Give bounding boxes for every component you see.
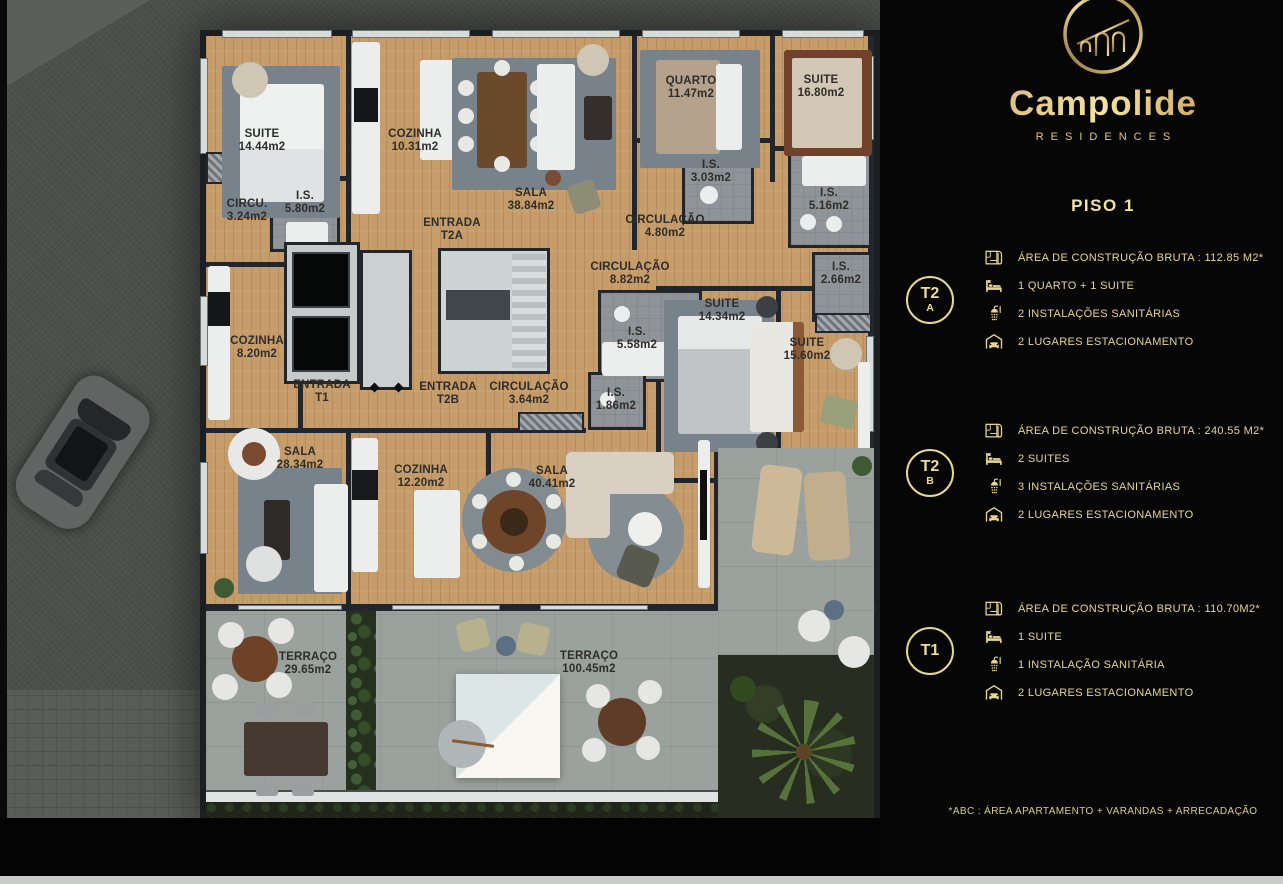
room-label: SUITE15.60m2: [784, 337, 831, 363]
kitchen-counter: [352, 438, 378, 572]
room-label: ENTRADAT2A: [423, 217, 481, 243]
badge-type: T2: [921, 286, 940, 302]
window: [200, 296, 208, 366]
side-table: [628, 512, 662, 546]
aqueduct-logo-icon: [1019, 0, 1187, 76]
stairs: [512, 254, 546, 368]
coffee-table: [584, 96, 612, 140]
table-center: [500, 508, 528, 536]
plant: [852, 456, 872, 476]
outdoor-chair: [515, 621, 551, 657]
floorplan-icon: [984, 421, 1004, 441]
room-label: SALA40.41m2: [529, 465, 576, 491]
room-label: CIRCU.3.24m2: [227, 198, 268, 224]
side-table: [824, 600, 844, 620]
dining-table: [477, 72, 527, 168]
unit-specs: ÁREA DE CONSTRUÇÃO BRUTA : 240.55 M2* 2 …: [984, 421, 1264, 524]
tv: [700, 470, 707, 540]
spec-text: 2 SUITES: [1018, 453, 1070, 465]
kitchen-island: [414, 490, 460, 578]
spec-text: 2 LUGARES ESTACIONAMENTO: [1018, 509, 1193, 521]
room-label: SALA28.34m2: [277, 446, 324, 472]
window: [492, 30, 620, 38]
bush: [730, 676, 756, 702]
garage-icon: [984, 683, 1004, 703]
elevator-shaft: [292, 252, 350, 308]
wardrobe: [815, 313, 872, 333]
dining-chairs: [458, 80, 474, 96]
unit-specs: ÁREA DE CONSTRUÇÃO BRUTA : 110.70M2* 1 S…: [984, 599, 1260, 702]
sofa: [537, 64, 575, 170]
room-label: COZINHA12.20m2: [394, 464, 448, 490]
stair-landing: [446, 290, 510, 320]
brand-name: Campolide: [903, 84, 1283, 124]
room-label: I.S.5.58m2: [617, 326, 657, 352]
room-label: TERRAÇO29.65m2: [279, 651, 337, 677]
pavement-left: [0, 690, 210, 822]
bed-icon: [984, 627, 1004, 647]
bathtub: [802, 156, 866, 186]
spec-row: ÁREA DE CONSTRUÇÃO BRUTA : 112.85 M2*: [984, 248, 1263, 267]
room-label: CIRCULAÇÃO4.80m2: [625, 214, 704, 240]
shower-icon: [984, 655, 1004, 675]
palm-trunk: [796, 744, 812, 760]
room-label: SUITE16.80m2: [798, 74, 845, 100]
spec-row: ÁREA DE CONSTRUÇÃO BRUTA : 240.55 M2*: [984, 421, 1264, 440]
unit-card-t2b: T2 B ÁREA DE CONSTRUÇÃO BRUTA : 240.55 M…: [906, 421, 1271, 524]
spec-text: 1 QUARTO + 1 SUITE: [1018, 280, 1134, 292]
bed: [656, 60, 720, 154]
spec-row: 2 LUGARES ESTACIONAMENTO: [984, 505, 1264, 524]
window: [200, 462, 208, 554]
room-label: SUITE14.44m2: [239, 128, 286, 154]
desk: [858, 362, 870, 450]
shower-icon: [984, 304, 1004, 324]
shower-icon: [984, 477, 1004, 497]
image-left-edge: [0, 0, 7, 822]
wall: [770, 36, 775, 182]
sun-lounger: [803, 471, 851, 562]
window: [222, 30, 332, 38]
spec-text: 1 INSTALAÇÃO SANITÁRIA: [1018, 659, 1165, 671]
room-label: I.S.5.80m2: [285, 190, 325, 216]
window: [238, 605, 342, 610]
spec-row: 2 LUGARES ESTACIONAMENTO: [984, 332, 1263, 351]
bottom-border-bar: [0, 876, 1283, 884]
spec-row: 2 INSTALAÇÕES SANITÁRIAS: [984, 304, 1263, 323]
spec-text: 2 LUGARES ESTACIONAMENTO: [1018, 687, 1193, 699]
room-label: SALA38.84m2: [508, 187, 555, 213]
window: [540, 605, 648, 610]
outdoor-chairs: [256, 702, 278, 718]
spec-row: 2 LUGARES ESTACIONAMENTO: [984, 683, 1260, 702]
bed-icon: [984, 449, 1004, 469]
sofa: [314, 484, 348, 592]
spec-text: ÁREA DE CONSTRUÇÃO BRUTA : 110.70M2*: [1018, 603, 1260, 615]
window: [642, 30, 740, 38]
garage-icon: [984, 332, 1004, 352]
unit-card-t1: T1 ÁREA DE CONSTRUÇÃO BRUTA : 110.70M2* …: [906, 599, 1271, 702]
spec-text: ÁREA DE CONSTRUÇÃO BRUTA : 240.55 M2*: [1018, 425, 1264, 437]
room-label: COZINHA8.20m2: [230, 335, 284, 361]
room-label: I.S.2.66m2: [821, 261, 861, 287]
spec-row: 2 SUITES: [984, 449, 1264, 468]
room-label: I.S.3.03m2: [691, 159, 731, 185]
spec-row: 1 INSTALAÇÃO SANITÁRIA: [984, 655, 1260, 674]
spec-row: 3 INSTALAÇÕES SANITÁRIAS: [984, 477, 1264, 496]
floorplan-icon: [984, 248, 1004, 268]
garage-icon: [984, 505, 1004, 525]
outdoor-chairs: [218, 622, 244, 648]
plant: [214, 578, 234, 598]
dining-chairs: [506, 472, 521, 487]
planter-strip: [346, 611, 376, 791]
washbasin: [614, 306, 630, 322]
room-label: QUARTO11.47m2: [666, 75, 717, 101]
room-label: ENTRADAT1: [293, 379, 351, 405]
badge-type: T2: [921, 459, 940, 475]
badge-type: T1: [921, 643, 940, 659]
room-label: TERRAÇO100.45m2: [560, 650, 618, 676]
car-sunroof: [54, 425, 110, 483]
armchair: [577, 44, 609, 76]
badge-letter: B: [926, 476, 934, 487]
kitchen-counter: [352, 42, 380, 214]
spec-row: 1 QUARTO + 1 SUITE: [984, 276, 1263, 295]
spec-text: ÁREA DE CONSTRUÇÃO BRUTA : 112.85 M2*: [1018, 252, 1263, 264]
outdoor-chair: [838, 636, 870, 668]
cooktop: [354, 88, 378, 122]
floor-title: PISO 1: [903, 196, 1283, 216]
toilet: [700, 186, 718, 204]
unit-badge-t2a: T2 A: [906, 276, 954, 324]
brand-logo: [903, 0, 1283, 81]
window: [352, 30, 470, 38]
brand-tagline: RESIDENCES: [903, 131, 1283, 143]
cooktop: [352, 470, 378, 500]
wall: [346, 36, 351, 248]
wardrobe: [518, 412, 584, 432]
abc-footnote: *ABC : ÁREA APARTAMENTO + VARANDAS + ARR…: [903, 806, 1283, 817]
window: [392, 605, 500, 610]
room-label: I.S.5.16m2: [809, 187, 849, 213]
bottom-shadow-strip: [0, 818, 880, 878]
side-table: [496, 636, 516, 656]
room-label: CIRCULAÇÃO8.82m2: [590, 261, 669, 287]
kitchen-counter: [208, 266, 230, 420]
elevator-shaft: [292, 316, 350, 372]
outdoor-chairs: [586, 684, 610, 708]
toilet: [800, 214, 816, 230]
bed-icon: [984, 276, 1004, 296]
badge-letter: A: [926, 303, 934, 314]
terrace-railing: [206, 790, 720, 802]
window: [200, 58, 208, 154]
unit-badge-t1: T1: [906, 627, 954, 675]
spec-row: ÁREA DE CONSTRUÇÃO BRUTA : 110.70M2*: [984, 599, 1260, 618]
floorplan-icon: [984, 599, 1004, 619]
spec-row: 1 SUITE: [984, 627, 1260, 646]
side-table: [756, 296, 778, 318]
campolide-floorplan-page: SUITE14.44m2COZINHA10.31m2SALA38.84m2ENT…: [0, 0, 1283, 884]
armchair: [246, 546, 282, 582]
unit-card-t2a: T2 A ÁREA DE CONSTRUÇÃO BRUTA : 112.85 M…: [906, 248, 1271, 351]
unit-specs: ÁREA DE CONSTRUÇÃO BRUTA : 112.85 M2* 1 …: [984, 248, 1263, 351]
pouf: [545, 170, 561, 186]
bed-sheets: [716, 64, 742, 150]
armchair: [232, 62, 268, 98]
spec-text: 1 SUITE: [1018, 631, 1062, 643]
toilet: [826, 216, 842, 232]
entrance-lobby: [360, 250, 412, 390]
parked-car: [32, 372, 132, 540]
spec-text: 3 INSTALAÇÕES SANITÁRIAS: [1018, 481, 1180, 493]
spec-text: 2 LUGARES ESTACIONAMENTO: [1018, 336, 1193, 348]
window: [782, 30, 864, 38]
spec-text: 2 INSTALAÇÕES SANITÁRIAS: [1018, 308, 1180, 320]
bed: [792, 58, 862, 148]
room-label: ENTRADAT2B: [419, 381, 477, 407]
room-label: CIRCULAÇÃO3.64m2: [489, 381, 568, 407]
table-center: [242, 442, 266, 466]
room-label: COZINHA10.31m2: [388, 128, 442, 154]
room-label: SUITE14.34m2: [699, 298, 746, 324]
cooktop: [208, 292, 230, 326]
unit-badge-t2b: T2 B: [906, 449, 954, 497]
room-label: I.S.1.86m2: [596, 387, 636, 413]
outdoor-dining-table: [244, 722, 328, 776]
